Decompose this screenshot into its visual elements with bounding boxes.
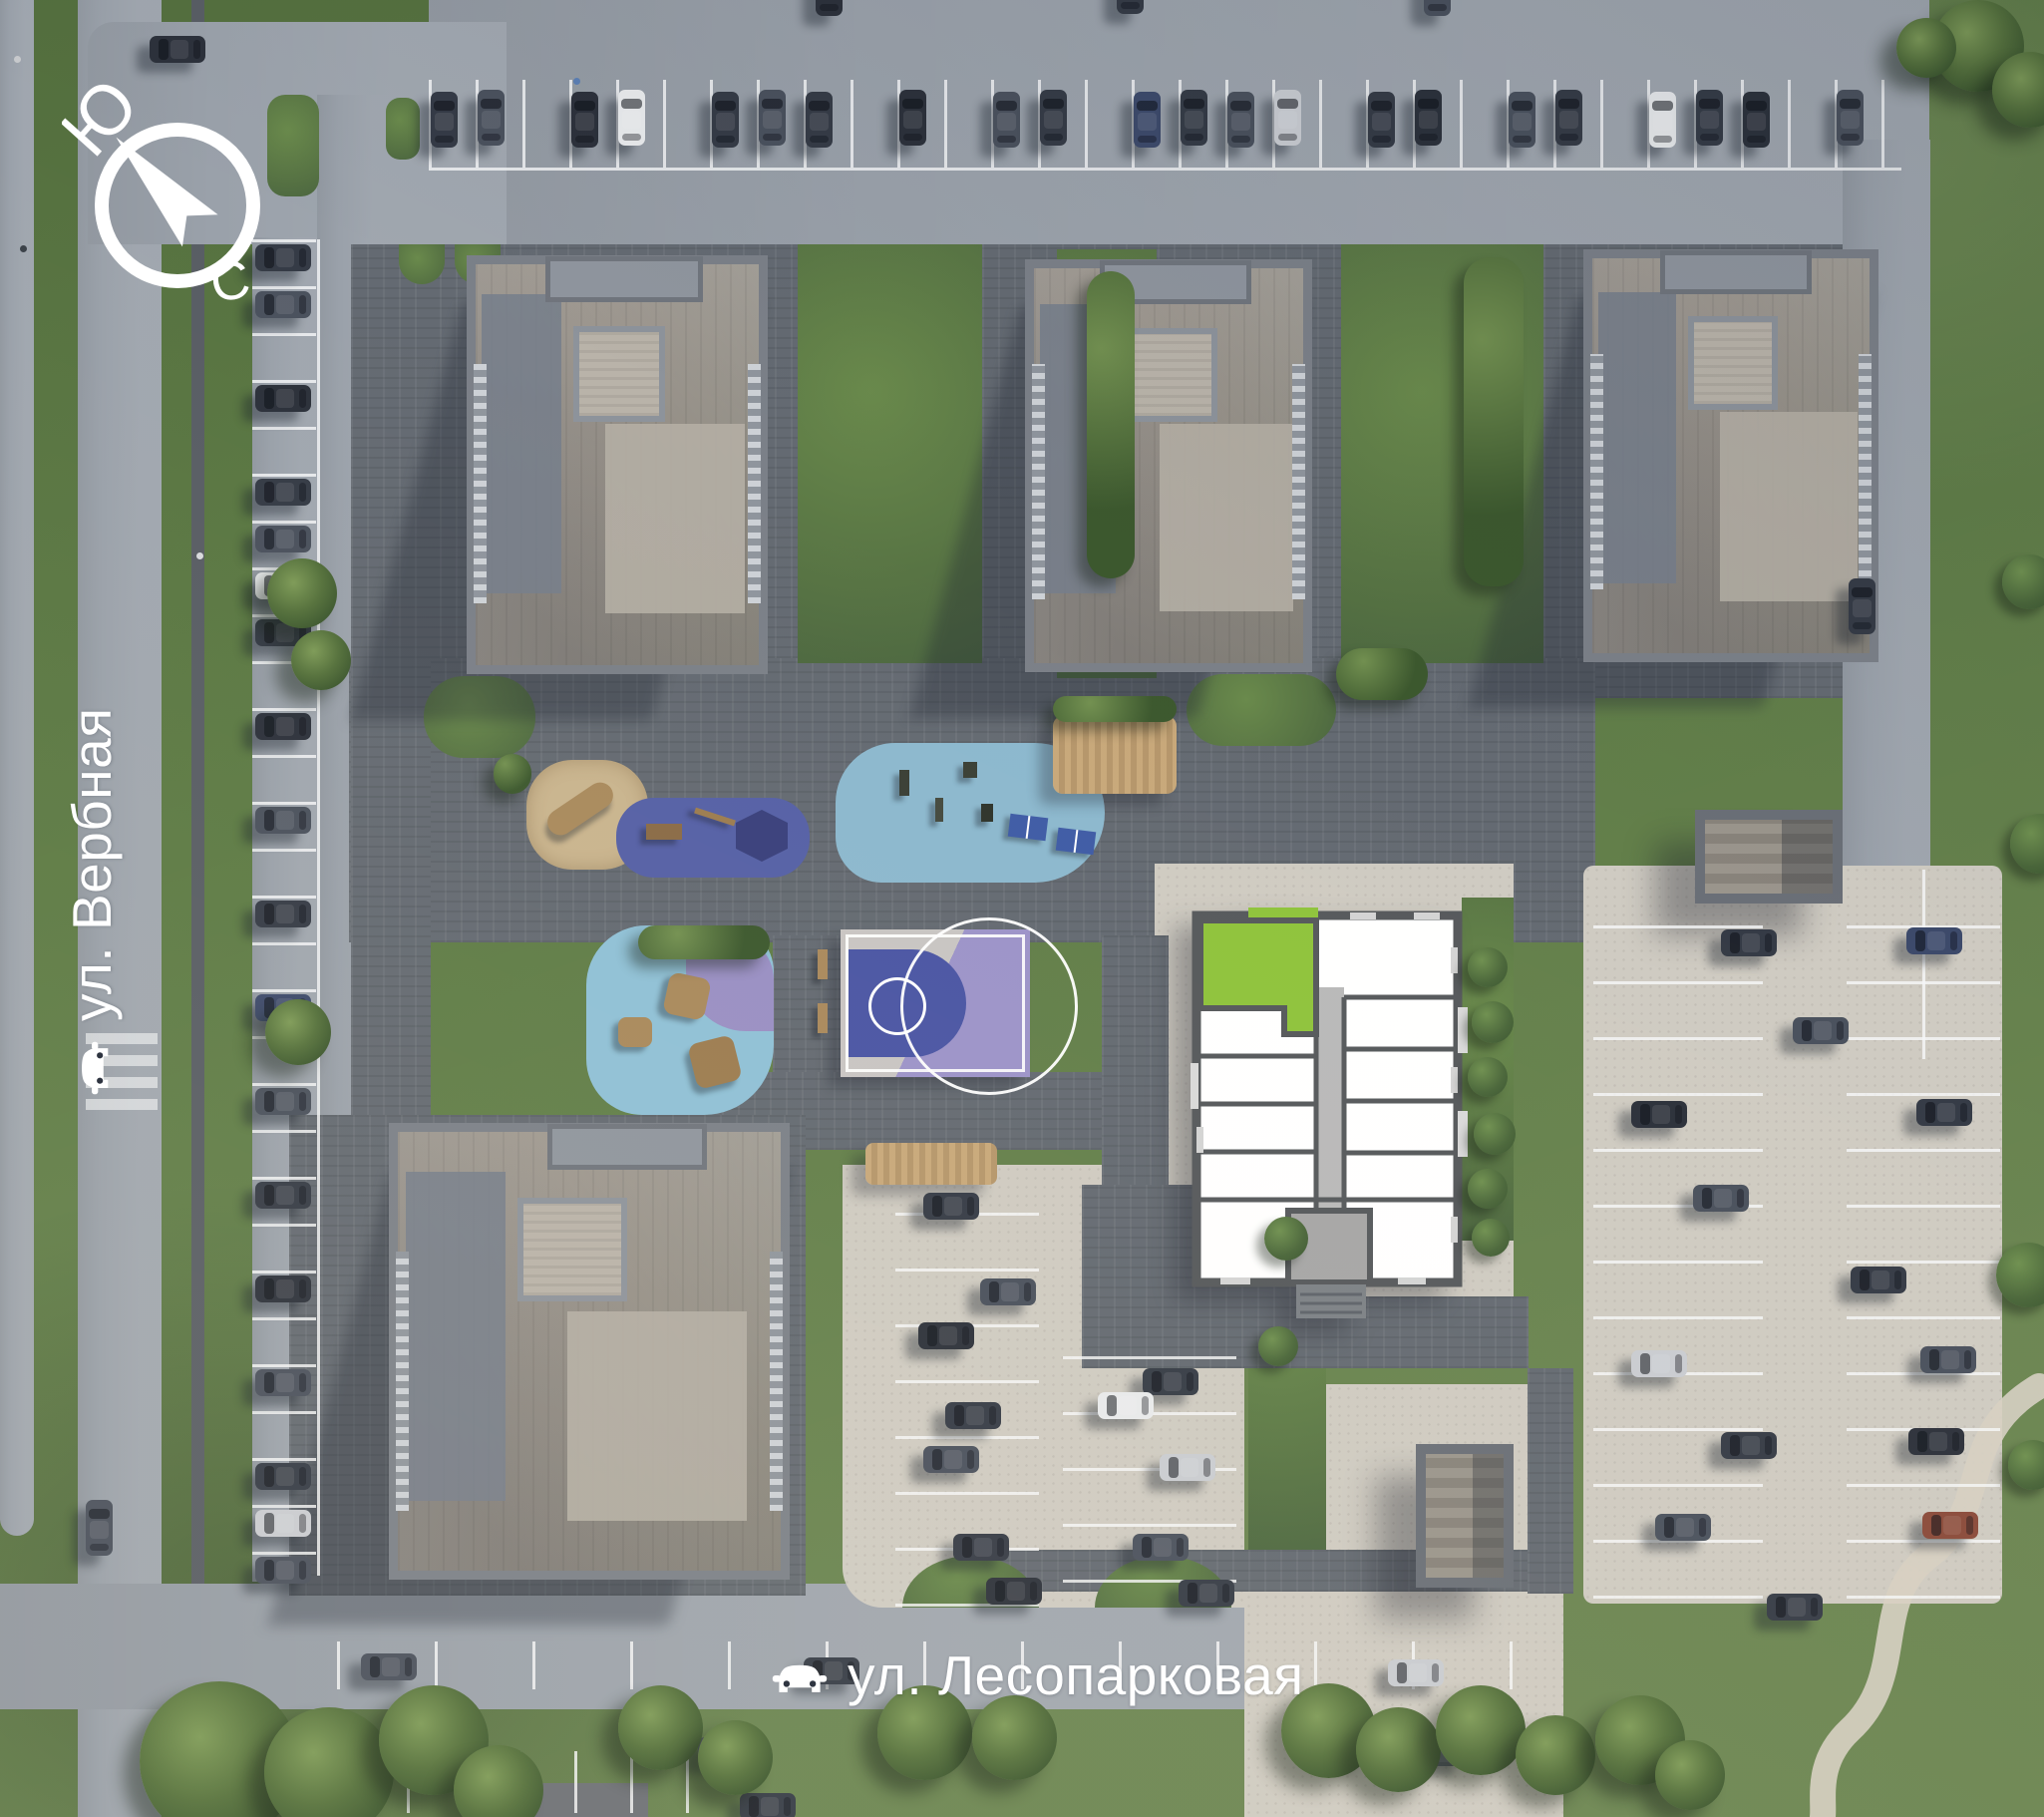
car [361,1653,417,1680]
lawn [386,98,420,160]
stall-line [429,168,1901,171]
street-name: ул. Вербная [60,707,124,1021]
stall-line [252,708,316,711]
car [1649,92,1676,148]
car [1134,92,1161,148]
hedge-row [1087,271,1135,578]
street-label-lesoparkovaya: ул. Лесопарковая [770,1643,1304,1707]
stall-line [252,1317,316,1320]
car [255,1088,311,1115]
stall-line [1593,1484,1763,1487]
car [1555,90,1582,146]
stall-line [1881,80,1884,168]
side-lane [0,0,34,1536]
car [1721,1432,1777,1459]
parking-ramp-north [1695,810,1843,904]
car [740,1793,796,1817]
car [1098,1392,1154,1419]
person [20,245,27,252]
car-icon [70,1039,114,1097]
stall-line [1600,80,1603,168]
stall-line [1319,80,1322,168]
selected-building-floorplan[interactable] [1191,908,1470,1326]
car [86,1500,113,1556]
stall-line [895,1436,1039,1439]
compass-icon: Ю С [62,38,291,327]
car [431,92,458,148]
courtyard-path [1102,935,1169,1187]
stall-line [252,755,316,758]
car [1509,92,1535,148]
compass-south-label: Ю [62,64,154,172]
stall-line [252,896,316,899]
car [255,1182,311,1209]
car [255,479,311,506]
stall-line [1593,1149,1763,1152]
car [986,1578,1042,1605]
stall-line [1922,870,1925,1059]
lawn [1187,674,1336,746]
stall-line [1593,981,1763,984]
street-label-verbnaya: ул. Вербная [60,707,124,1097]
car [1696,90,1723,146]
tree [265,999,331,1065]
street-name: ул. Лесопарковая [848,1643,1304,1707]
stall-line [252,1271,316,1273]
bush [2010,814,2044,874]
car [1117,0,1144,14]
stall-line [663,80,666,168]
stall-line [1593,1596,1763,1599]
stall-line [1460,80,1463,168]
stall-line [728,1641,731,1689]
stall-line [1593,1428,1763,1431]
stall-line [252,802,316,805]
stall-line [1847,1149,2000,1152]
building-3[interactable] [1583,249,1878,662]
building-1[interactable] [467,255,768,674]
bush [1468,1169,1508,1209]
stall-line [1847,1093,2000,1096]
stall-line [1847,1205,2000,1208]
car [945,1402,1001,1429]
car [816,0,843,16]
hedge-row [638,925,770,959]
park-path [1695,1346,2044,1817]
car [255,1463,311,1490]
fitness-equipment [981,804,993,822]
car [1693,1185,1749,1212]
stall-line [252,942,316,945]
wood-deck-south [865,1143,997,1185]
stall-line [1788,80,1791,168]
car [1143,1368,1198,1395]
stall-line [1085,80,1088,168]
stall-line [895,1380,1039,1383]
person [573,78,580,85]
stall-line [1847,1484,2000,1487]
car [1133,1534,1189,1561]
hedge-row [1336,648,1428,700]
bush [1474,1113,1516,1155]
bush [1468,947,1508,987]
tree [972,1695,1057,1780]
person [14,56,21,63]
car [712,92,739,148]
play-tower [662,971,712,1021]
tree [1896,18,1956,78]
car [1767,1594,1823,1621]
stall-line [252,989,316,992]
building-2[interactable] [1025,259,1312,672]
car [255,1275,311,1302]
car [255,713,311,740]
car [899,90,926,146]
stall-line [252,1364,316,1367]
car [255,1557,311,1584]
hedge-row [494,754,531,794]
stall-line [252,1177,316,1180]
bush [1472,1001,1514,1043]
car [1040,90,1067,146]
car [1181,90,1207,146]
bush [1468,1057,1508,1097]
car [1179,1580,1234,1607]
car [1160,1454,1215,1481]
stall-line [1847,1372,2000,1375]
car [255,385,311,412]
stall-line [532,1641,535,1689]
car [1916,1099,1972,1126]
stall-line [1063,1524,1236,1527]
stall-line [252,427,316,430]
car [255,807,311,834]
stall-line [522,80,525,168]
car [478,90,505,146]
fitness-equipment [935,798,943,822]
car [806,92,833,148]
car [1368,92,1395,148]
basketball-court [841,929,1030,1077]
car [1415,90,1442,146]
stall-line [252,521,316,524]
stall-line [317,239,320,1576]
car [918,1322,974,1349]
building-4[interactable] [389,1123,790,1580]
car [1851,1267,1906,1293]
bush [1472,1219,1510,1257]
courtyard-path [1528,1368,1573,1594]
stall-line [1847,1316,2000,1319]
stall-line [337,1641,340,1689]
car [1906,927,1962,954]
car [255,901,311,927]
stall-line [252,474,316,477]
tree [291,630,351,690]
tree [1356,1707,1441,1792]
courtyard-path [773,935,845,1080]
car [1274,90,1301,146]
bush [1996,1243,2044,1307]
tree [618,1685,703,1770]
car [923,1446,979,1473]
hedge-row [1464,257,1524,586]
wood-deck-north [1053,716,1177,794]
tree [698,1720,773,1795]
hedge-row [1053,696,1177,722]
tree [1655,1740,1725,1810]
stall-line [1593,1037,1763,1040]
car [923,1193,979,1220]
stall-line [252,1458,316,1461]
bush [2002,554,2044,609]
stall-line [252,333,316,336]
stall-line [1593,925,1763,928]
play-structure [618,1017,652,1047]
car [1424,0,1451,16]
car [1388,1659,1444,1686]
compass-north-label: С [205,248,254,314]
car [980,1278,1036,1305]
car [255,1510,311,1537]
bush [1264,1217,1308,1261]
stall-line [252,849,316,852]
tree [1436,1685,1526,1775]
bush [1258,1326,1298,1366]
car [1227,92,1254,148]
car [1908,1428,1964,1455]
car [255,1369,311,1396]
stall-line [1593,1093,1763,1096]
car [1922,1512,1978,1539]
car [1837,90,1864,146]
tree [267,558,337,628]
parking-ramp-south [1416,1444,1514,1588]
stall-line [630,1641,633,1689]
stall-line [252,1130,316,1133]
stall-line [944,80,947,168]
car [1631,1101,1687,1128]
car [759,90,786,146]
court-bench [818,1003,828,1033]
car [1920,1346,1976,1373]
car [1721,929,1777,956]
car [571,92,598,148]
stall-line [1593,1316,1763,1319]
tree [1516,1715,1595,1795]
stall-line [574,1751,577,1813]
site-plan: Ю С ул. Вербная ул. Лесопарковая [0,0,2044,1817]
pingpong-table [1056,828,1097,855]
stall-line [252,380,316,383]
pingpong-table [1008,814,1049,841]
stall-line [895,1269,1039,1272]
car [1631,1350,1687,1377]
stall-line [895,1492,1039,1495]
person [196,552,203,559]
court-bench [818,949,828,979]
stall-line [851,80,853,168]
stall-line [252,1411,316,1414]
fitness-equipment [963,762,977,778]
stall-line [1847,1596,2000,1599]
picnic-table [646,824,682,840]
car-icon [770,1652,830,1698]
car [953,1534,1009,1561]
car [1655,1514,1711,1541]
stall-line [252,1552,316,1555]
car [1743,92,1770,148]
fitness-equipment [899,770,909,796]
stall-line [1063,1356,1236,1359]
car [1793,1017,1849,1044]
stall-line [1847,1261,2000,1264]
car [255,526,311,552]
stall-line [252,1224,316,1227]
stall-line [252,1083,316,1086]
car [993,92,1020,148]
car [1849,578,1875,634]
stall-line [435,1641,438,1689]
stall-line [1510,1641,1513,1689]
stall-line [1847,1540,2000,1543]
stall-line [1314,1641,1317,1689]
stall-line [252,1505,316,1508]
stall-line [1593,1261,1763,1264]
car [618,90,645,146]
